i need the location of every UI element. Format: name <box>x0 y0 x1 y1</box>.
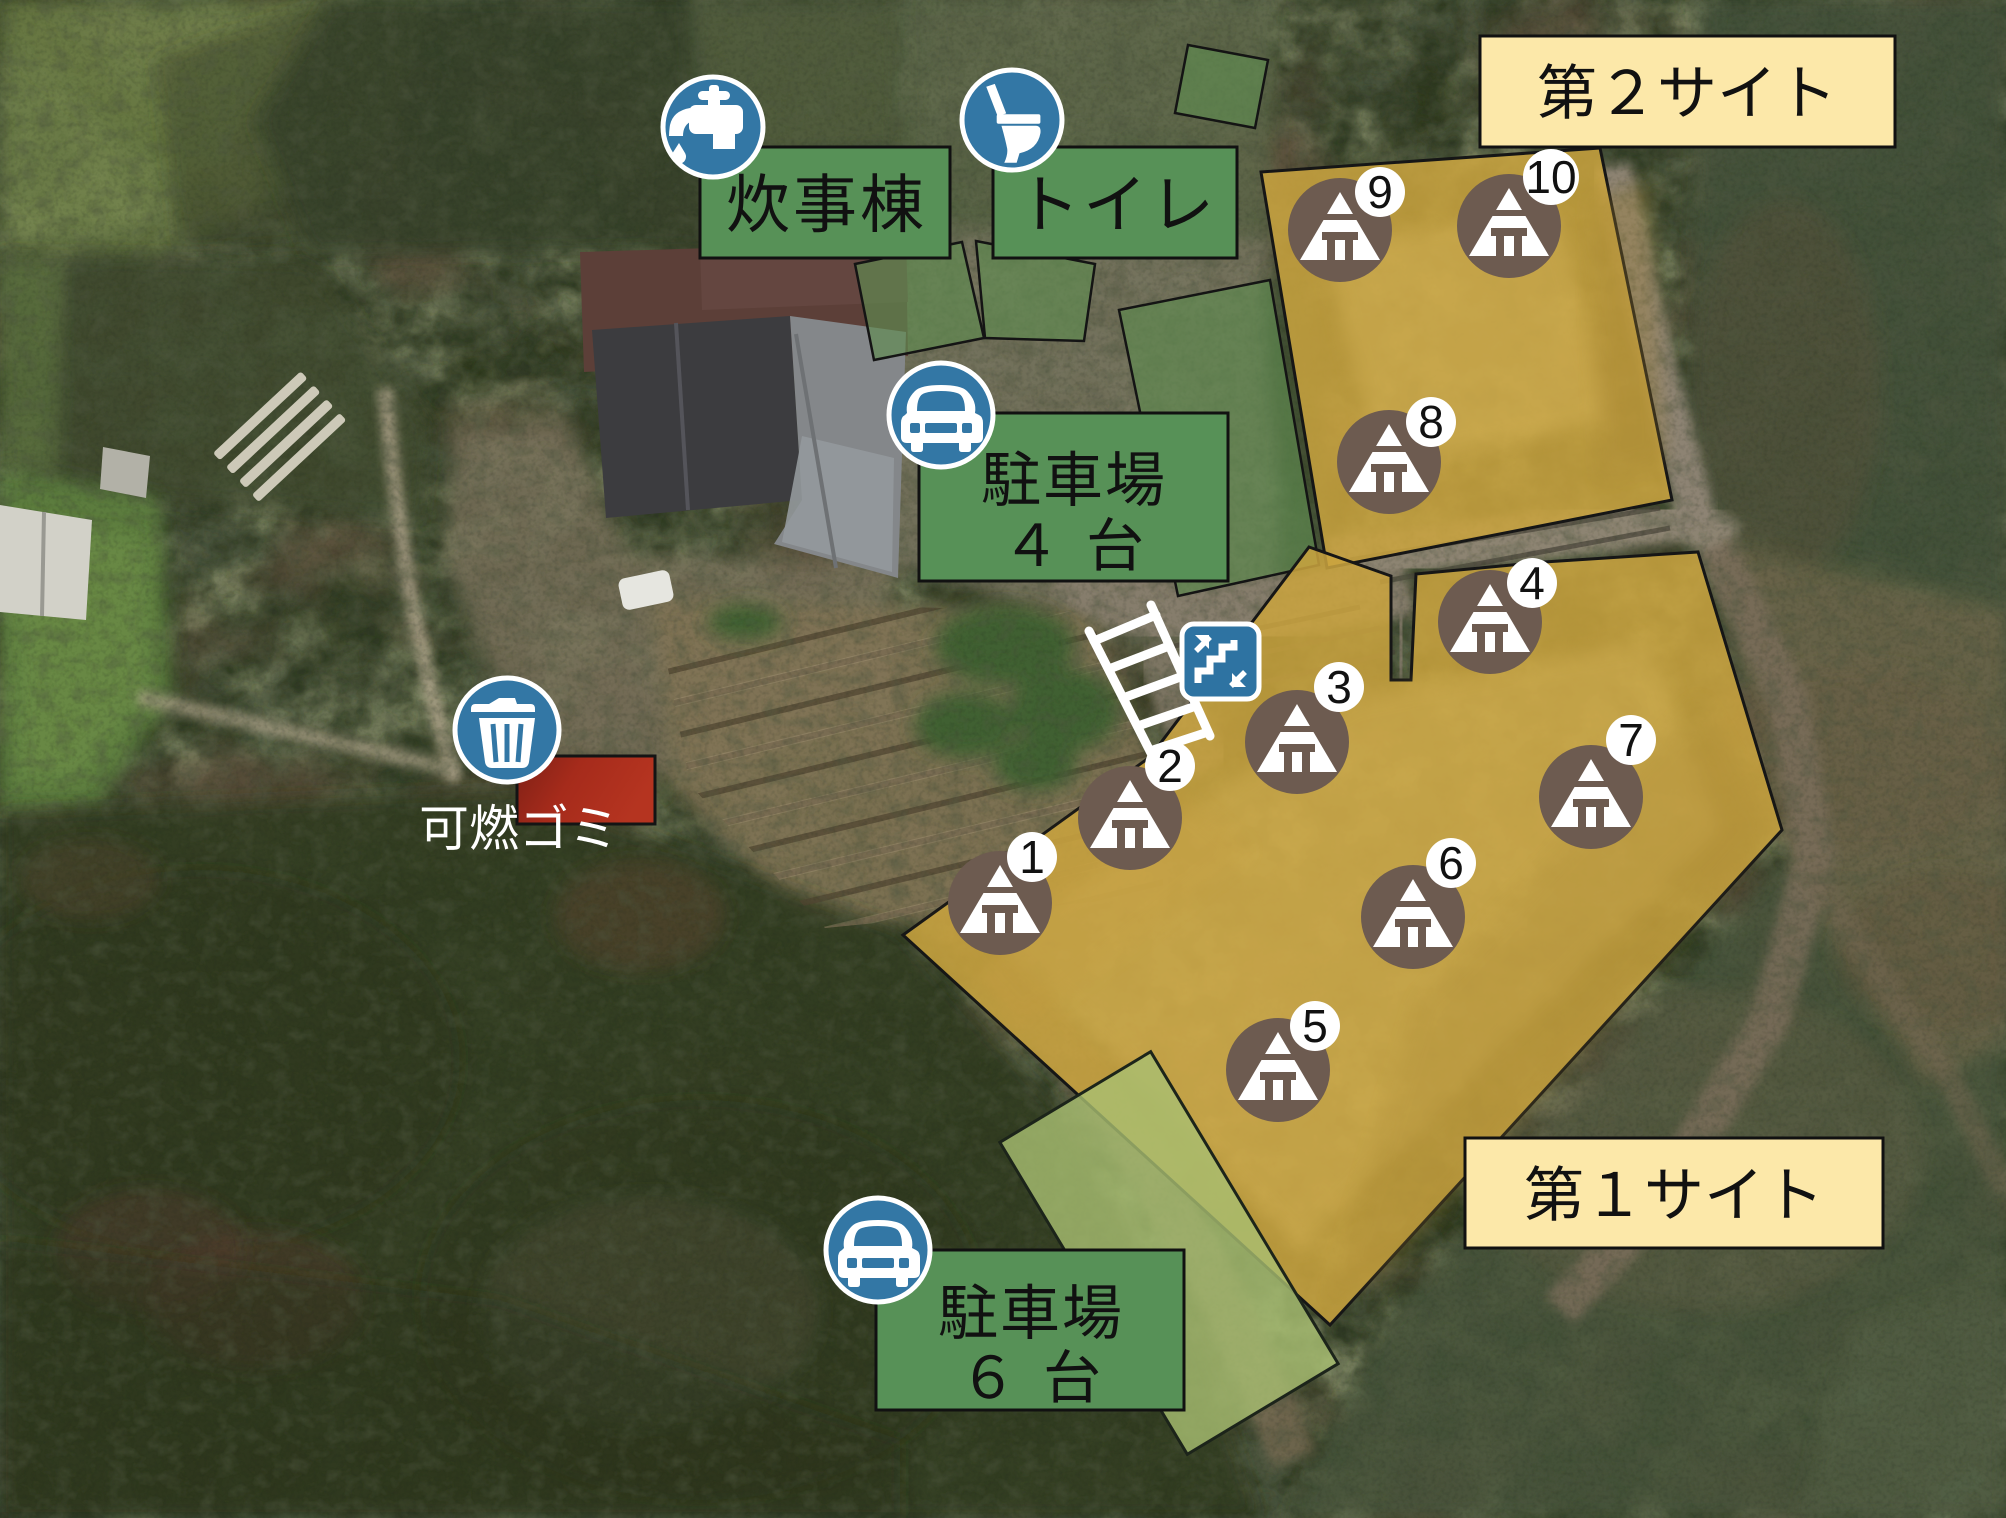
svg-text:2: 2 <box>1157 740 1183 792</box>
svg-text:4: 4 <box>1519 557 1545 609</box>
svg-text:5: 5 <box>1302 1000 1328 1052</box>
svg-text:3: 3 <box>1326 661 1352 713</box>
svg-text:10: 10 <box>1525 151 1576 203</box>
svg-text:7: 7 <box>1618 714 1644 766</box>
svg-text:1: 1 <box>1019 831 1045 883</box>
svg-text:6: 6 <box>1438 837 1464 889</box>
svg-text:9: 9 <box>1367 166 1393 218</box>
svg-text:8: 8 <box>1418 396 1444 448</box>
